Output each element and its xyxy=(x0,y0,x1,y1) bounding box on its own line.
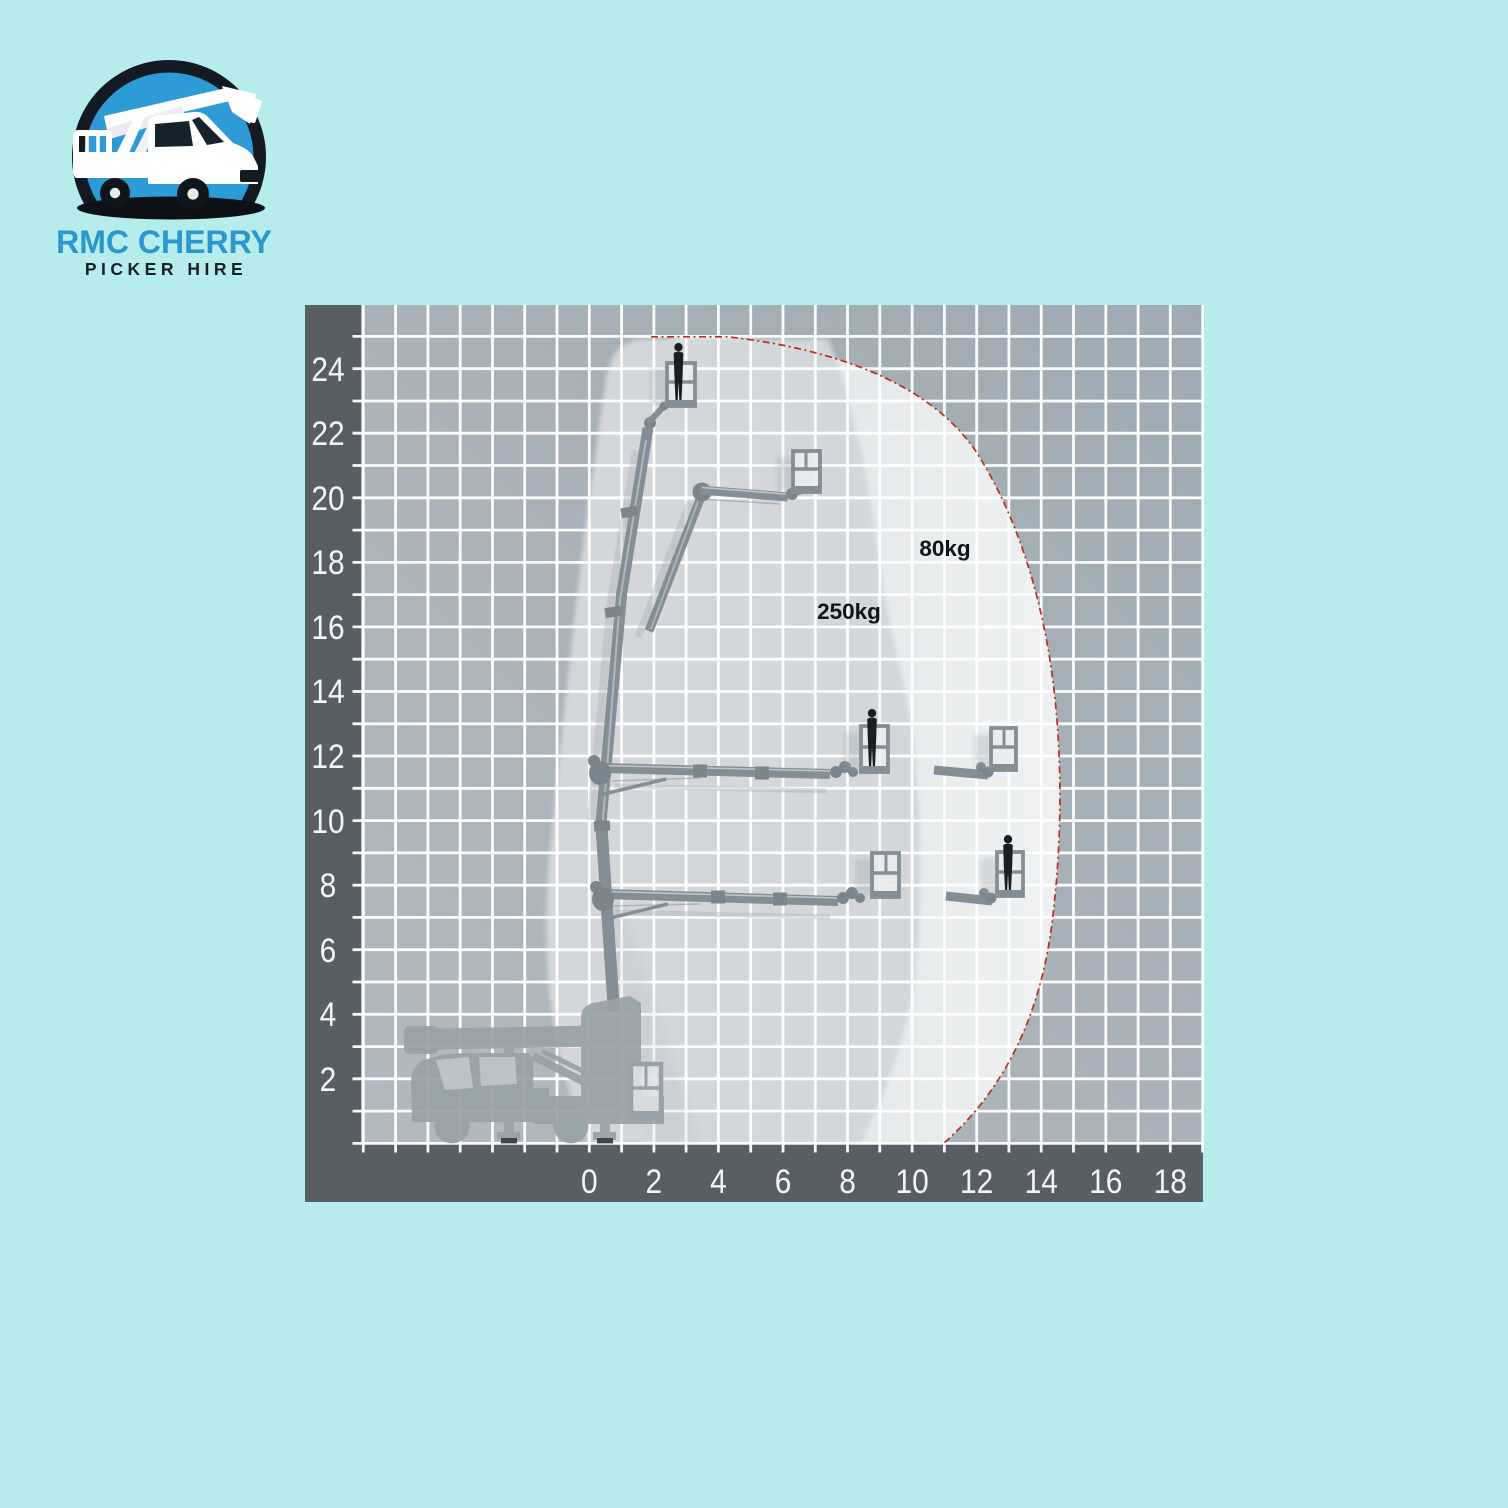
svg-text:24: 24 xyxy=(311,350,344,388)
svg-text:16: 16 xyxy=(1089,1162,1122,1200)
svg-text:12: 12 xyxy=(311,737,344,775)
svg-text:10: 10 xyxy=(895,1162,928,1200)
svg-text:18: 18 xyxy=(1154,1162,1187,1200)
svg-text:PICKER HIRE: PICKER HIRE xyxy=(85,259,247,279)
svg-text:4: 4 xyxy=(320,995,337,1033)
svg-text:14: 14 xyxy=(1025,1162,1058,1200)
svg-text:250kg: 250kg xyxy=(817,599,881,624)
svg-text:14: 14 xyxy=(311,672,344,710)
svg-text:80kg: 80kg xyxy=(919,536,970,561)
svg-text:4: 4 xyxy=(710,1162,727,1200)
svg-text:16: 16 xyxy=(311,608,344,646)
svg-text:RMC CHERRY: RMC CHERRY xyxy=(56,224,272,260)
svg-text:2: 2 xyxy=(320,1060,337,1098)
svg-text:6: 6 xyxy=(775,1162,792,1200)
svg-text:0: 0 xyxy=(581,1162,598,1200)
svg-text:18: 18 xyxy=(311,543,344,581)
svg-text:8: 8 xyxy=(320,866,337,904)
svg-text:10: 10 xyxy=(311,802,344,840)
svg-text:12: 12 xyxy=(960,1162,993,1200)
svg-text:20: 20 xyxy=(311,479,344,517)
svg-text:6: 6 xyxy=(320,931,337,969)
svg-text:8: 8 xyxy=(839,1162,856,1200)
svg-text:22: 22 xyxy=(311,414,344,452)
svg-text:2: 2 xyxy=(646,1162,663,1200)
